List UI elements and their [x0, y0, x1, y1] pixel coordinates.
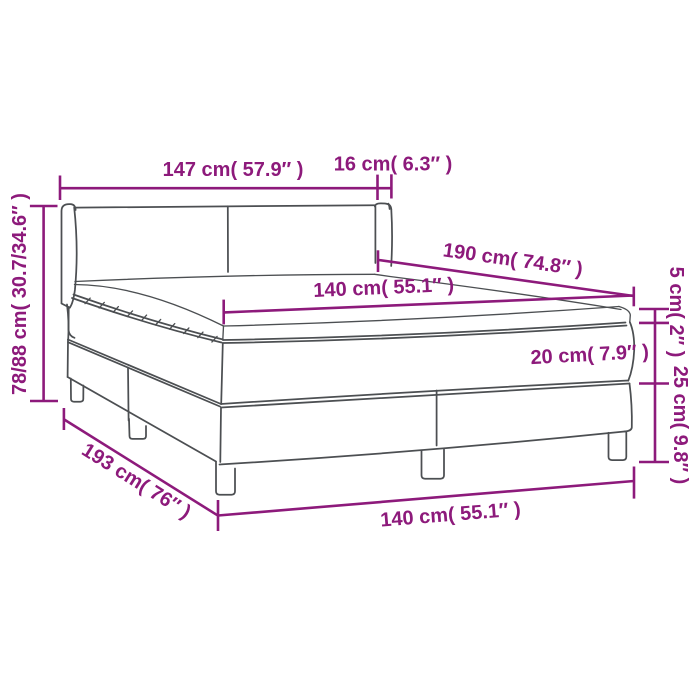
svg-text:5 cm( 2″ ): 5 cm( 2″ ) [665, 267, 687, 358]
svg-text:25 cm( 9.8″ ): 25 cm( 9.8″ ) [669, 366, 691, 485]
svg-text:78/88 cm( 30.7/34.6″ ): 78/88 cm( 30.7/34.6″ ) [9, 193, 31, 395]
svg-text:16 cm( 6.3″ ): 16 cm( 6.3″ ) [334, 154, 453, 176]
svg-text:147 cm( 57.9″ ): 147 cm( 57.9″ ) [163, 159, 304, 181]
